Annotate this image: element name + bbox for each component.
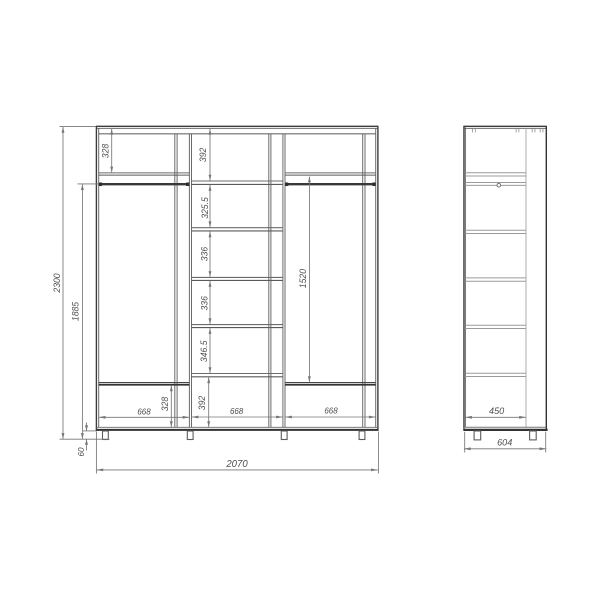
svg-text:336: 336 (200, 247, 210, 261)
svg-text:450: 450 (489, 406, 505, 417)
svg-text:325.5: 325.5 (200, 196, 210, 219)
svg-text:1520: 1520 (298, 269, 308, 288)
svg-text:2300: 2300 (52, 273, 62, 293)
svg-text:60: 60 (76, 447, 86, 456)
svg-text:668: 668 (137, 406, 151, 416)
svg-text:604: 604 (497, 437, 512, 448)
svg-text:346.5: 346.5 (199, 340, 209, 363)
svg-text:2070: 2070 (225, 459, 248, 470)
svg-text:668: 668 (230, 406, 244, 416)
svg-text:392: 392 (197, 396, 207, 410)
svg-text:668: 668 (324, 406, 338, 416)
svg-text:328: 328 (160, 397, 170, 411)
svg-text:392: 392 (198, 148, 208, 162)
svg-text:328: 328 (100, 144, 110, 158)
svg-text:336: 336 (200, 296, 210, 310)
svg-text:1885: 1885 (71, 301, 81, 321)
